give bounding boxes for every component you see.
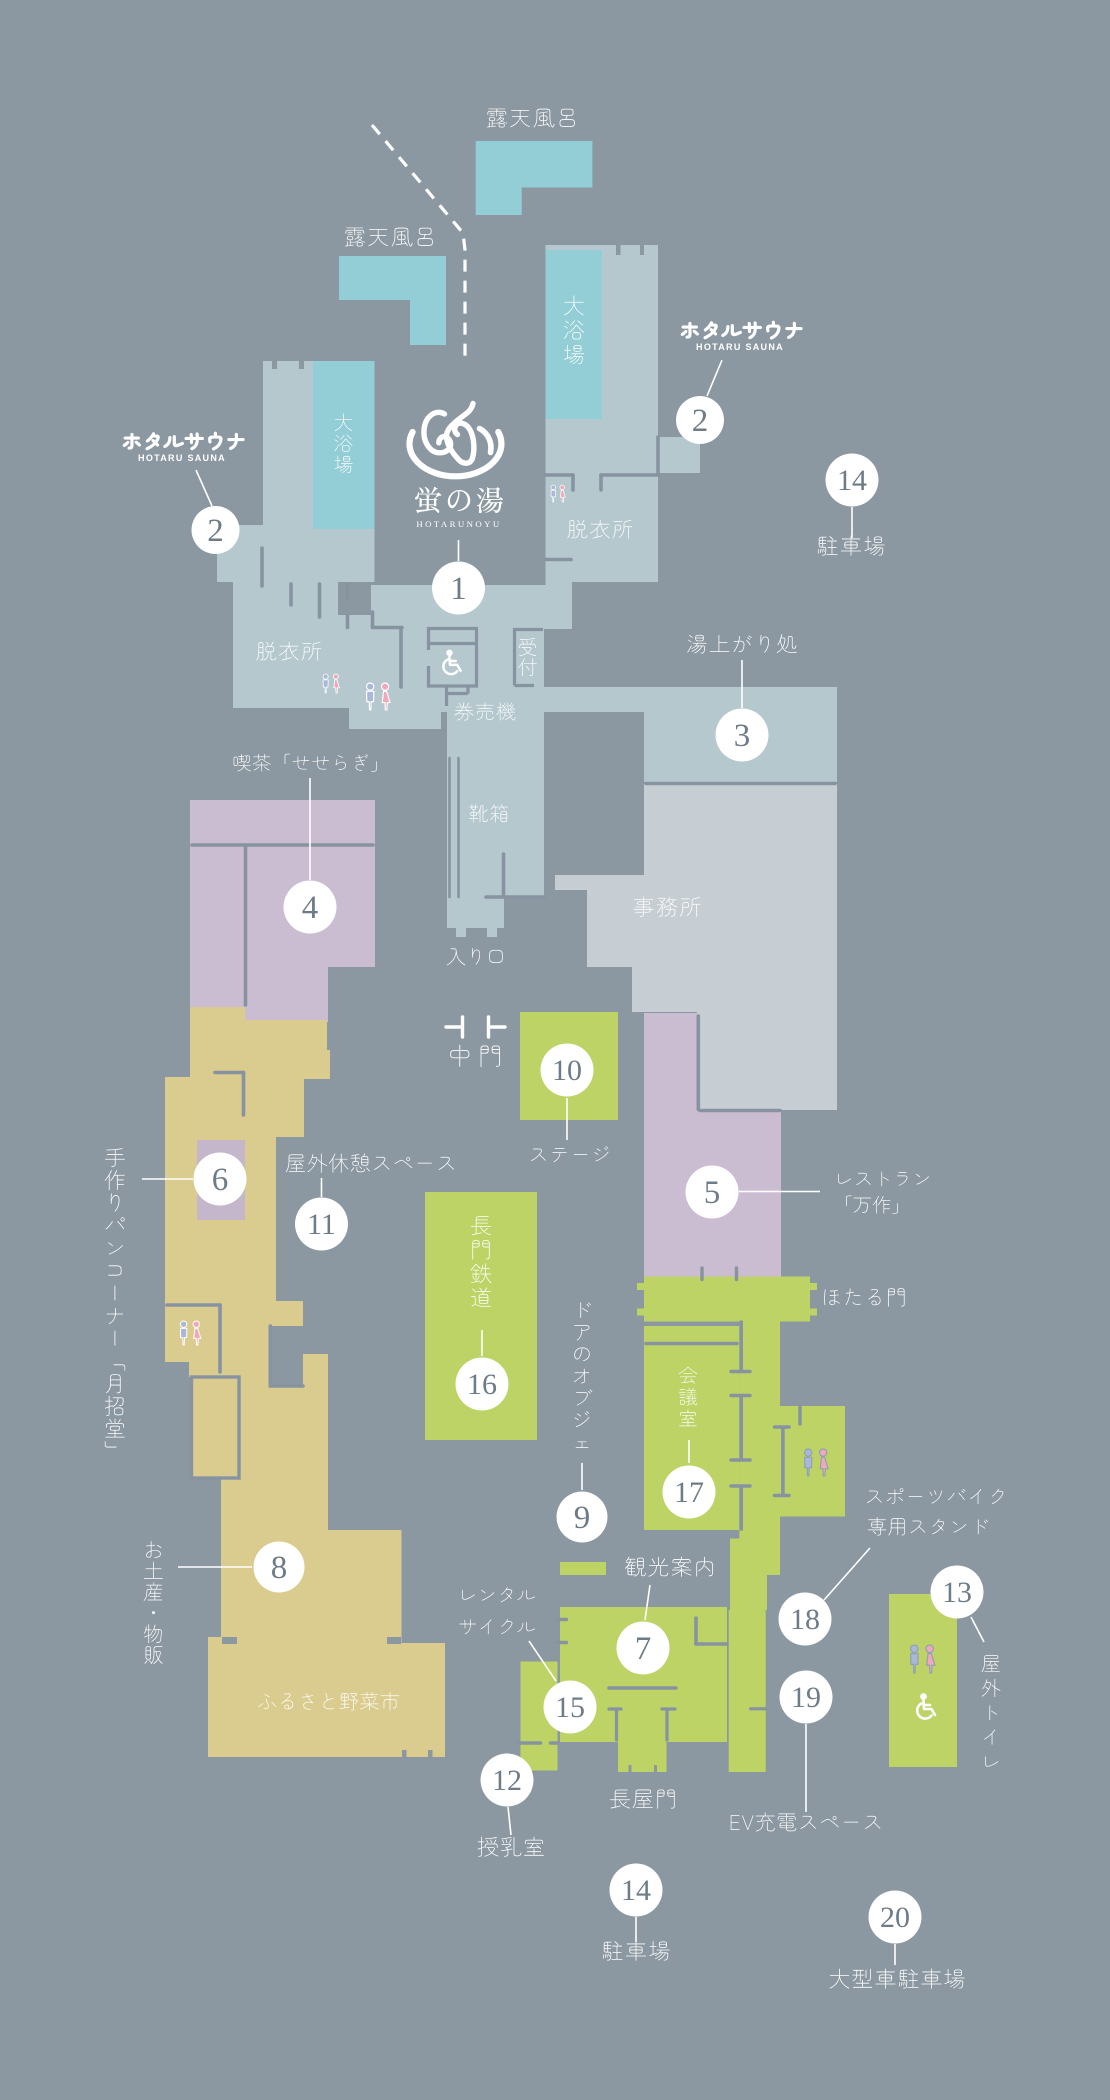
svg-text:17: 17 — [674, 1476, 704, 1509]
svg-text:14: 14 — [621, 1874, 651, 1907]
svg-text:9: 9 — [574, 1500, 591, 1536]
svg-text:7: 7 — [635, 1631, 652, 1667]
svg-text:HOTARU SAUNA: HOTARU SAUNA — [138, 453, 226, 463]
svg-text:13: 13 — [942, 1576, 972, 1609]
svg-text:6: 6 — [212, 1162, 229, 1198]
svg-text:8: 8 — [271, 1550, 288, 1586]
svg-text:19: 19 — [791, 1681, 821, 1714]
svg-text:2: 2 — [207, 513, 224, 549]
svg-text:10: 10 — [552, 1054, 582, 1087]
svg-text:14: 14 — [837, 464, 867, 497]
svg-text:15: 15 — [555, 1691, 585, 1724]
svg-text:1: 1 — [450, 571, 467, 607]
svg-text:20: 20 — [880, 1901, 910, 1934]
svg-text:2: 2 — [692, 403, 709, 439]
svg-text:HOTARUNOYU: HOTARUNOYU — [416, 519, 501, 529]
svg-text:HOTARU SAUNA: HOTARU SAUNA — [696, 342, 784, 352]
svg-text:4: 4 — [302, 890, 319, 926]
svg-text:16: 16 — [467, 1368, 497, 1401]
svg-text:5: 5 — [704, 1175, 721, 1211]
svg-text:12: 12 — [492, 1764, 522, 1797]
svg-text:18: 18 — [790, 1603, 820, 1636]
svg-text:3: 3 — [734, 718, 751, 754]
svg-text:11: 11 — [307, 1208, 336, 1241]
